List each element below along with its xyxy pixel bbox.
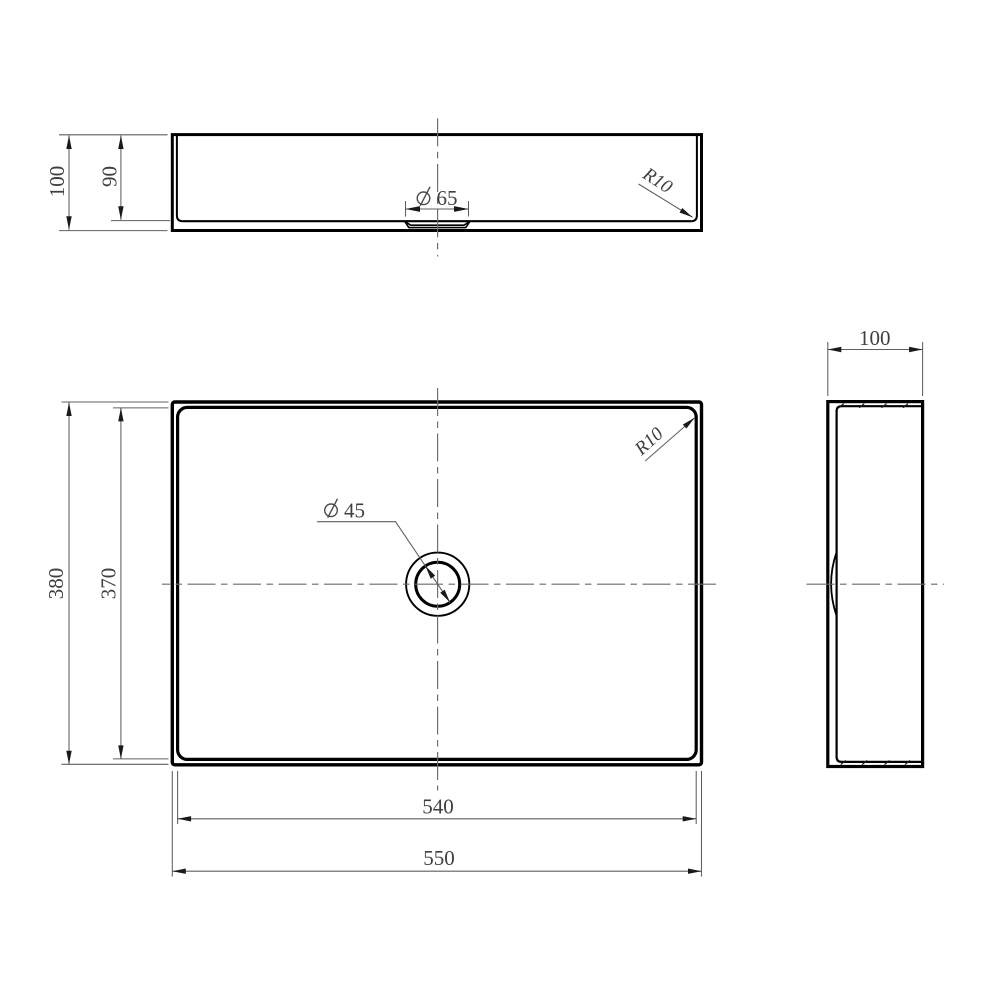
svg-text:370: 370 (97, 568, 121, 600)
svg-text:90: 90 (98, 166, 122, 187)
svg-text:540: 540 (422, 795, 454, 819)
svg-text:100: 100 (859, 326, 891, 350)
svg-text:45: 45 (344, 499, 365, 523)
svg-text:380: 380 (44, 568, 68, 600)
svg-text:65: 65 (437, 186, 458, 210)
svg-text:550: 550 (423, 846, 455, 870)
svg-text:100: 100 (45, 166, 69, 198)
